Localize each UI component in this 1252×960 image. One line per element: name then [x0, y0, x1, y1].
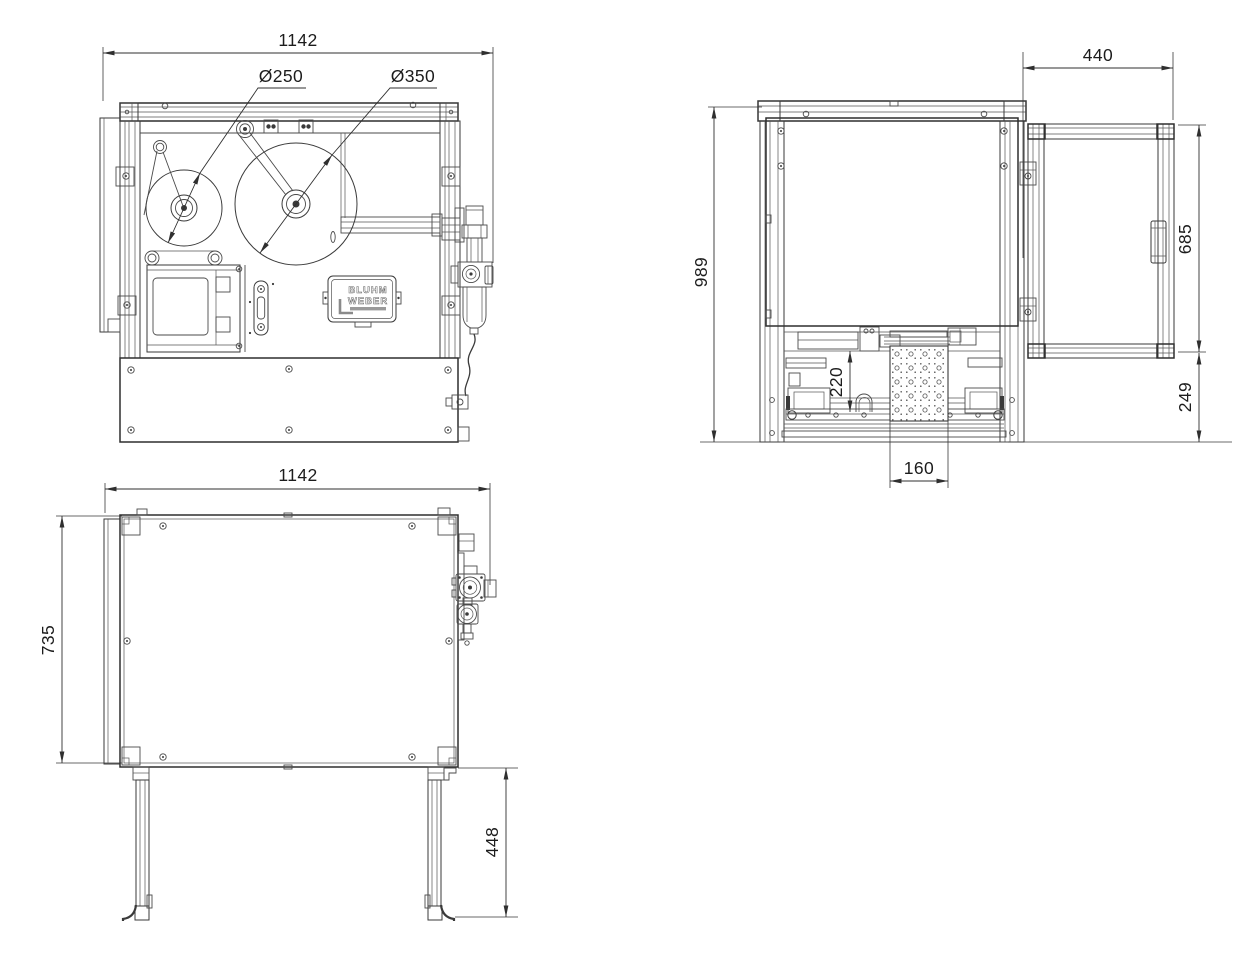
stroke-height-label: 220: [826, 367, 846, 397]
dim-leg-length: 448: [455, 768, 518, 917]
left-foot-hook: [123, 905, 136, 921]
front-left-panel: [100, 118, 120, 332]
side-view: 989: [691, 45, 1232, 488]
front-right-column: [440, 121, 460, 358]
top-main-body: [120, 508, 458, 769]
sight-glass: [249, 281, 274, 335]
drawing-canvas: 1142: [0, 0, 1252, 960]
dim-reel-small-diameter: Ø250: [168, 66, 306, 243]
dim-base-height: 249: [1175, 353, 1199, 442]
front-view: 1142: [100, 30, 493, 442]
label-reel-large: [235, 121, 357, 266]
logo-line2: WEBER: [348, 296, 388, 307]
front-top-band: [120, 102, 458, 121]
open-door-frame: [1028, 124, 1174, 358]
side-main-panel: [766, 118, 1018, 326]
logo-line1: BLUHM: [348, 285, 387, 296]
dim-reel-large-diameter: Ø350: [260, 66, 437, 253]
top-width-label: 1142: [278, 465, 317, 485]
perforated-pad: [890, 346, 948, 421]
pad-width-label: 160: [904, 458, 934, 478]
side-height-label: 989: [691, 257, 711, 287]
right-foot-hook: [441, 905, 454, 921]
dim-door-height: 685: [1175, 125, 1206, 352]
applicator-mechanism: [780, 327, 1008, 442]
reel-small-dia-label: Ø250: [259, 66, 303, 86]
right-leg: [425, 767, 456, 921]
dim-top-depth: 735: [38, 516, 122, 763]
front-back-plate: [140, 120, 442, 243]
top-view: 1142 735: [38, 465, 518, 921]
reel-large-dia-label: Ø350: [391, 66, 435, 86]
front-width-label: 1142: [278, 30, 317, 50]
logo-tagline-bar: [350, 307, 386, 310]
dim-side-height: 989: [691, 107, 762, 442]
top-rear-strip: [104, 519, 120, 764]
left-leg: [123, 767, 152, 921]
label-reel-small: [144, 141, 222, 247]
top-depth-label: 735: [38, 625, 58, 655]
logo-plate: BLUHM WEBER: [323, 276, 401, 327]
dim-top-width: 1142: [105, 465, 490, 585]
guide-rollers: [145, 251, 222, 265]
front-base-panel: [120, 358, 469, 442]
electronics-box: [147, 265, 245, 352]
base-height-label: 249: [1175, 382, 1195, 412]
door-width-label: 440: [1083, 45, 1113, 65]
door-height-label: 685: [1175, 224, 1195, 254]
leg-length-label: 448: [482, 827, 502, 857]
